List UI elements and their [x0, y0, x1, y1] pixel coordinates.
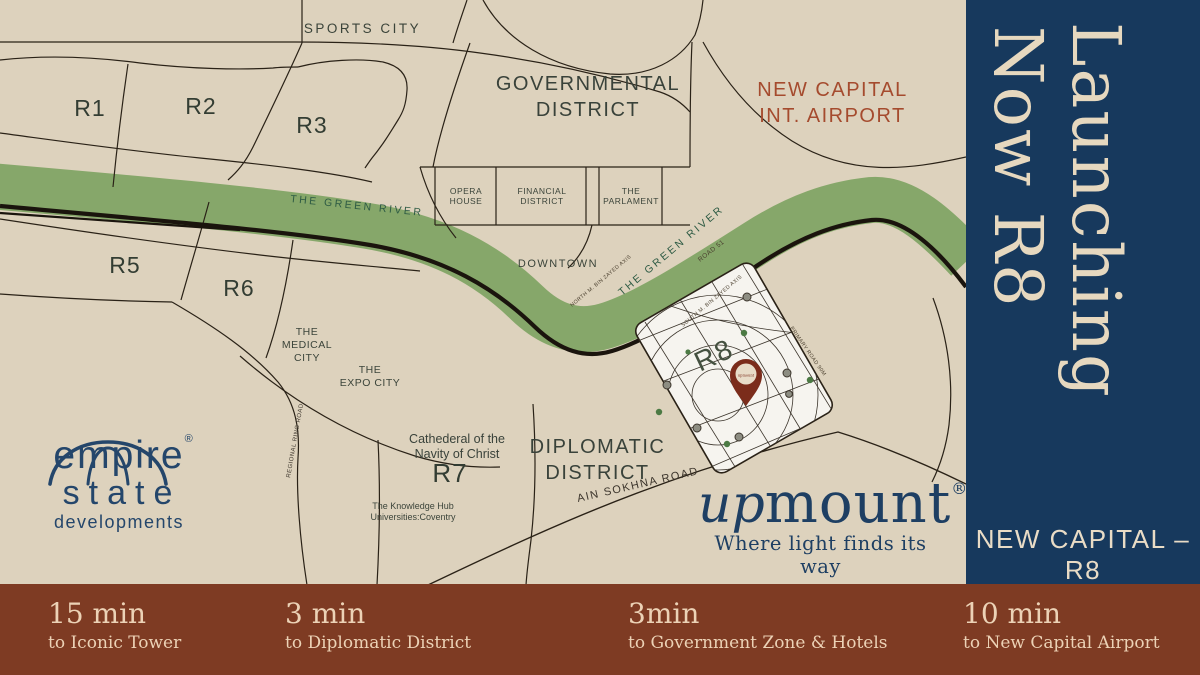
- map-area: R8 upmount THE GREEN RIVER THE GREEN RIV…: [0, 0, 966, 584]
- distance-destination: to Diplomatic District: [285, 632, 471, 654]
- distance-time: 3min: [628, 599, 888, 630]
- label-governmental-district: GOVERNMENTAL DISTRICT: [468, 71, 708, 123]
- upmount-tagline: Where light finds its way: [698, 532, 943, 578]
- label-parliament: THE PARLAMENT: [600, 186, 662, 207]
- empire-logo-subtitle: developments: [44, 513, 194, 531]
- distance-destination: to New Capital Airport: [963, 632, 1160, 654]
- upmount-wordmark: upmount®: [698, 476, 943, 532]
- distance-destination: to Government Zone & Hotels: [628, 632, 888, 654]
- label-new-capital-airport: NEW CAPITAL INT. AIRPORT: [735, 77, 930, 129]
- distance-bar: 15 min to Iconic Tower 3 min to Diplomat…: [0, 584, 1200, 675]
- label-financial-district: FINANCIAL DISTRICT: [498, 186, 586, 207]
- label-medical-city: THE MEDICAL CITY: [267, 326, 347, 364]
- label-r2: R2: [171, 92, 231, 120]
- distance-time: 3 min: [285, 599, 471, 630]
- distance-time: 10 min: [963, 599, 1160, 630]
- location-label: NEW CAPITAL – R8: [966, 524, 1200, 586]
- label-r1: R1: [60, 94, 120, 122]
- distance-time: 15 min: [48, 599, 181, 630]
- distance-item: 10 min to New Capital Airport: [963, 599, 1160, 654]
- label-r3: R3: [282, 111, 342, 139]
- label-opera-house: OPERA HOUSE: [436, 186, 496, 207]
- label-sports-city: SPORTS CITY: [280, 21, 445, 37]
- label-diplomatic-district: DIPLOMATIC DISTRICT: [510, 434, 685, 486]
- regional-ring-road-label: REGIONAL RING ROAD: [286, 403, 305, 479]
- upmount-logo: upmount® Where light finds its way: [698, 476, 943, 578]
- pin-text: upmount: [738, 374, 755, 378]
- distance-destination: to Iconic Tower: [48, 632, 181, 654]
- label-r6: R6: [209, 274, 269, 302]
- label-knowledge-hub: The Knowledge Hub Universities:Coventry: [338, 501, 488, 523]
- launching-vertical-text: Launching: [1062, 22, 1129, 399]
- now-r8-vertical-text: Now R8: [984, 26, 1051, 309]
- label-downtown: DOWNTOWN: [498, 258, 618, 271]
- registered-mark-icon: ®: [185, 434, 195, 445]
- label-r7: R7: [420, 458, 480, 490]
- empire-logo-line1: empire®: [44, 436, 194, 475]
- empire-state-logo: empire® state developments: [44, 436, 194, 531]
- sidebar: Launching Now R8 NEW CAPITAL – R8: [966, 0, 1200, 584]
- label-expo-city: THE EXPO CITY: [320, 364, 420, 390]
- distance-item: 3 min to Diplomatic District: [285, 599, 471, 654]
- distance-item: 3min to Government Zone & Hotels: [628, 599, 888, 654]
- registered-mark-icon: ®: [951, 479, 967, 498]
- distance-item: 15 min to Iconic Tower: [48, 599, 181, 654]
- label-r5: R5: [95, 251, 155, 279]
- poster: R8 upmount THE GREEN RIVER THE GREEN RIV…: [0, 0, 1200, 675]
